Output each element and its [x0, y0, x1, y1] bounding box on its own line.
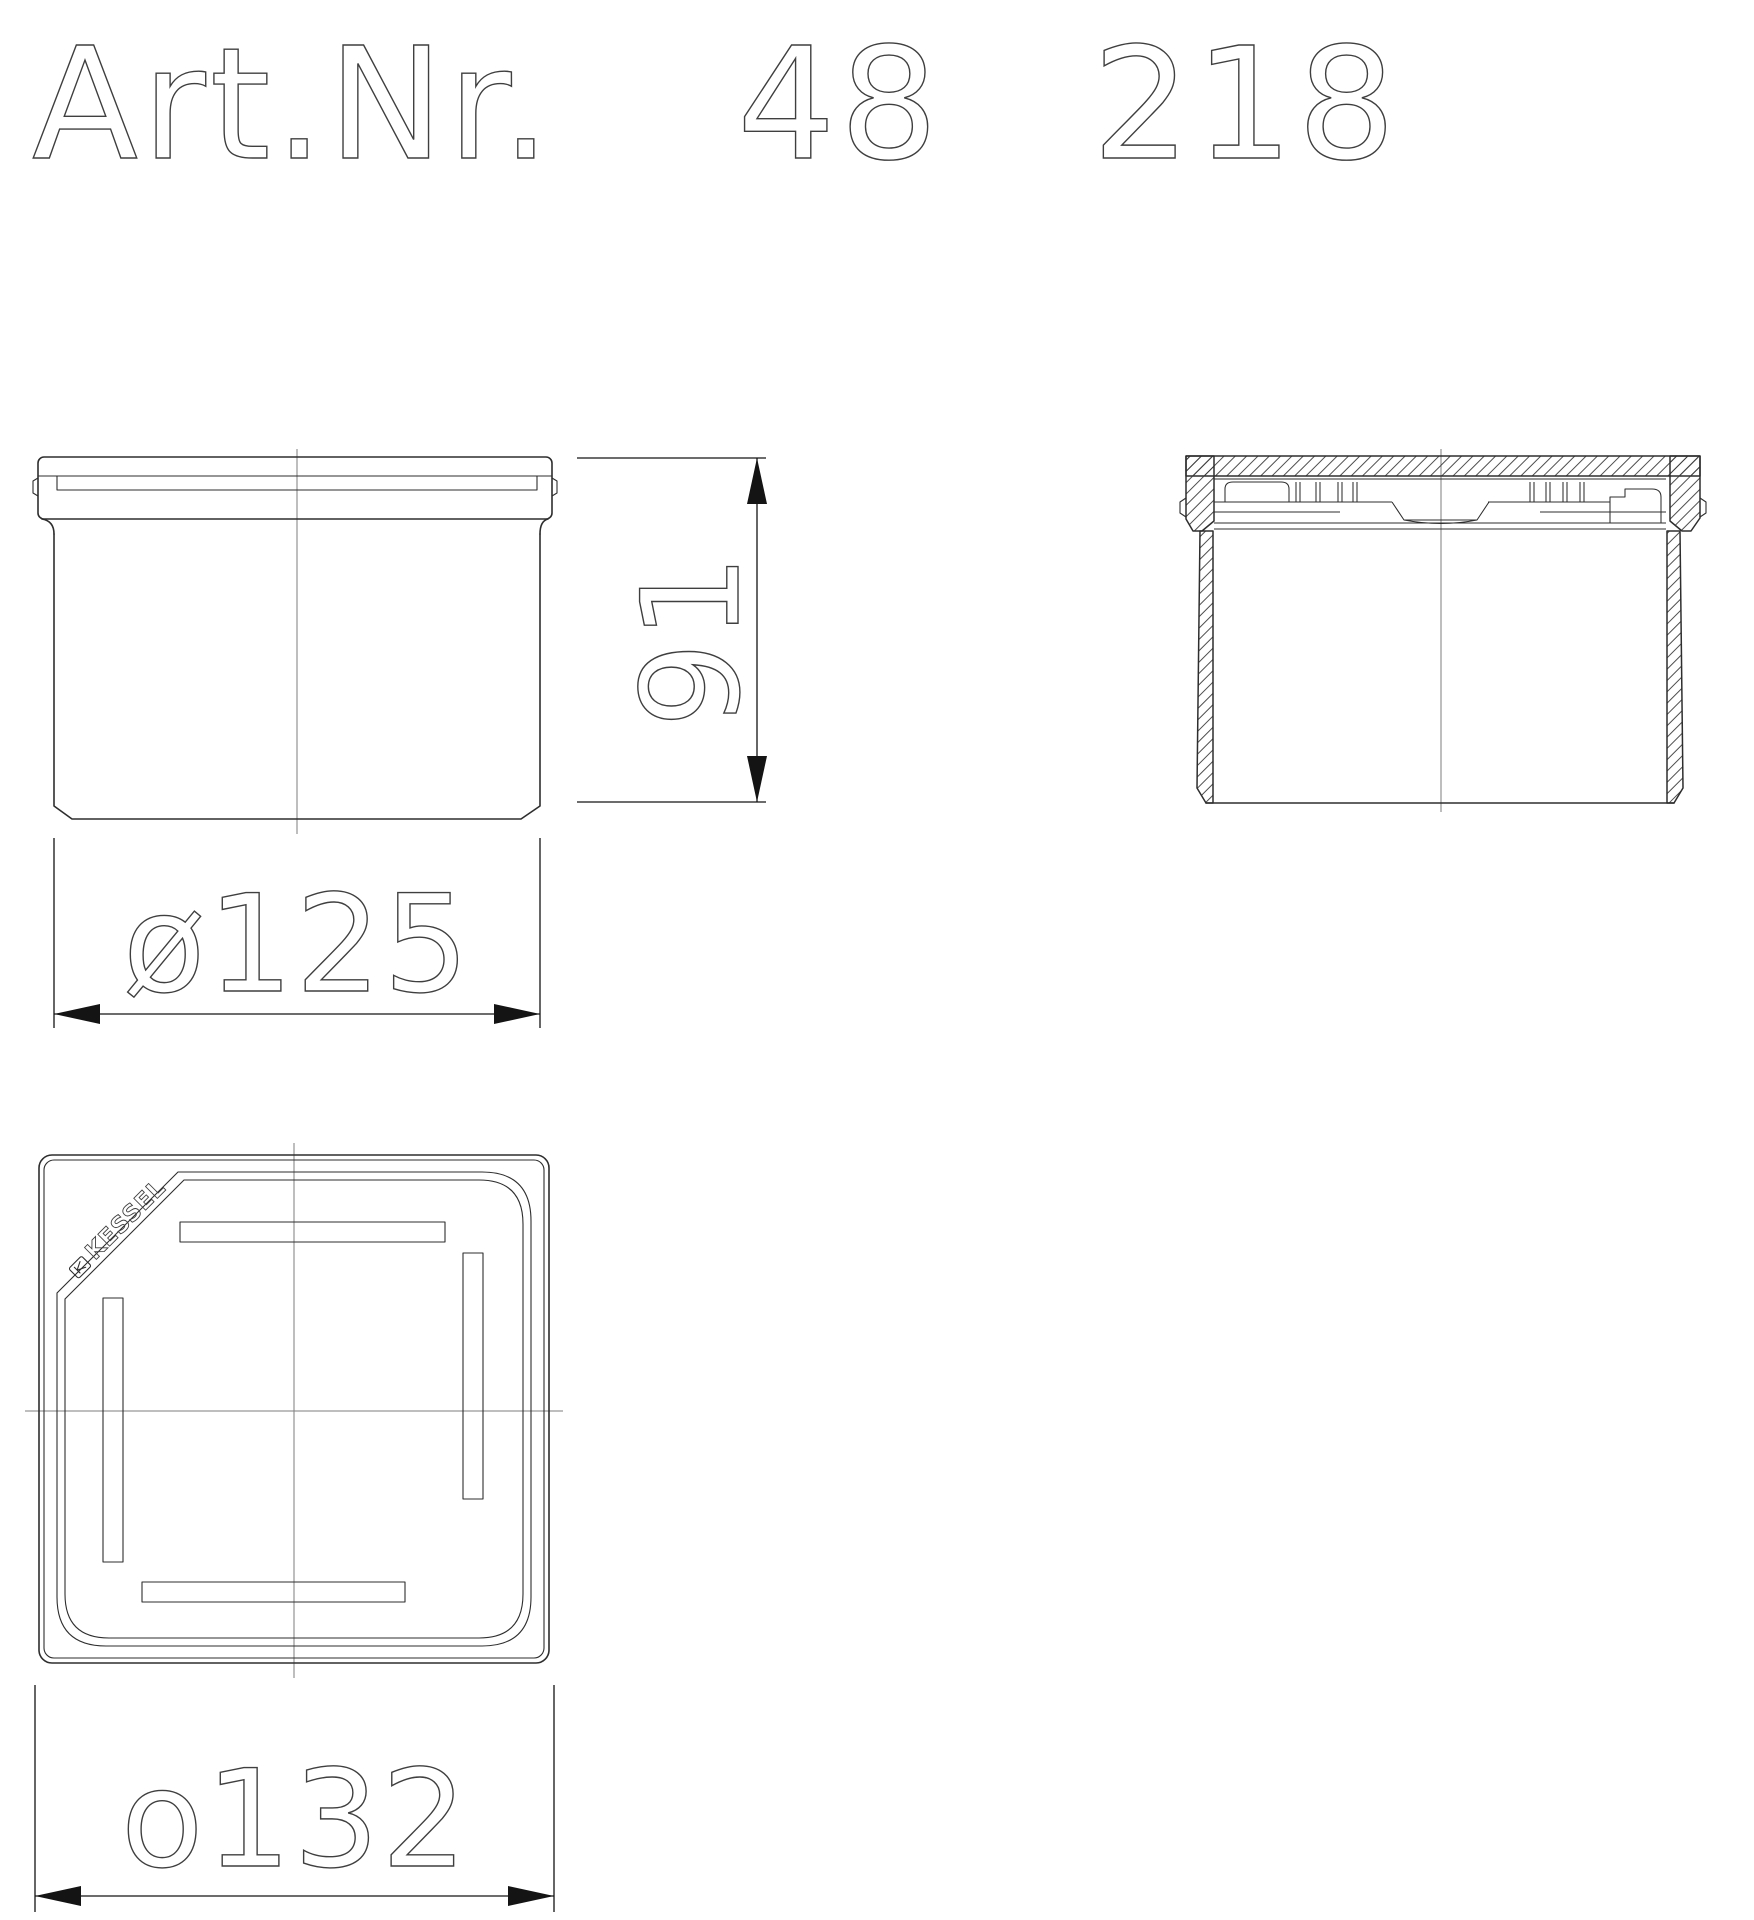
kessel-logo-mark-k-icon	[74, 1262, 85, 1273]
side-view	[33, 449, 557, 834]
kessel-logo: KESSEL	[64, 1175, 171, 1282]
article-number-label: Art.Nr.	[32, 14, 555, 195]
dimension-body-diameter-label: ø125	[123, 866, 471, 1023]
title-block: Art.Nr. 48 218	[32, 14, 1400, 195]
dimension-plate-width: o132	[35, 1685, 554, 1912]
technical-drawing-sheet: Art.Nr. 48 218 ø125 91	[0, 0, 1754, 1920]
arrowhead-up-icon	[747, 458, 767, 504]
grate-slot-top	[180, 1222, 445, 1242]
grate-slot-bottom	[142, 1582, 405, 1602]
dimension-height: 91	[577, 458, 770, 802]
arrowhead-left-icon	[54, 1004, 100, 1024]
section-left-skirt	[1186, 456, 1214, 531]
article-number-group-2: 218	[1092, 14, 1400, 195]
arrowhead-right-icon	[494, 1004, 540, 1024]
section-right-skirt	[1670, 456, 1700, 531]
kessel-logo-text: KESSEL	[81, 1175, 172, 1266]
dimension-body-diameter: ø125	[54, 838, 540, 1028]
drawing-canvas: Art.Nr. 48 218 ø125 91	[0, 0, 1754, 1920]
top-view: KESSEL	[25, 1143, 563, 1678]
section-internal-details	[1214, 479, 1666, 529]
section-right-tab	[1700, 498, 1706, 517]
section-left-wall	[1197, 531, 1213, 803]
side-view-shoulders	[42, 519, 548, 534]
arrowhead-down-icon	[747, 756, 767, 802]
article-number-group-1: 48	[737, 14, 942, 195]
section-right-wall	[1667, 531, 1683, 803]
side-view-lid-outline	[38, 457, 552, 519]
dimension-height-label: 91	[613, 552, 770, 728]
grate-slot-right	[463, 1253, 483, 1499]
arrowhead-left-icon	[35, 1886, 81, 1906]
section-view	[1180, 449, 1706, 812]
grate-slot-left	[103, 1298, 123, 1562]
kessel-logo-mark-icon	[69, 1256, 92, 1279]
dimension-plate-width-label: o132	[121, 1741, 469, 1898]
section-left-tab	[1180, 498, 1186, 517]
section-lid-hatched-band	[1186, 456, 1700, 476]
arrowhead-right-icon	[508, 1886, 554, 1906]
